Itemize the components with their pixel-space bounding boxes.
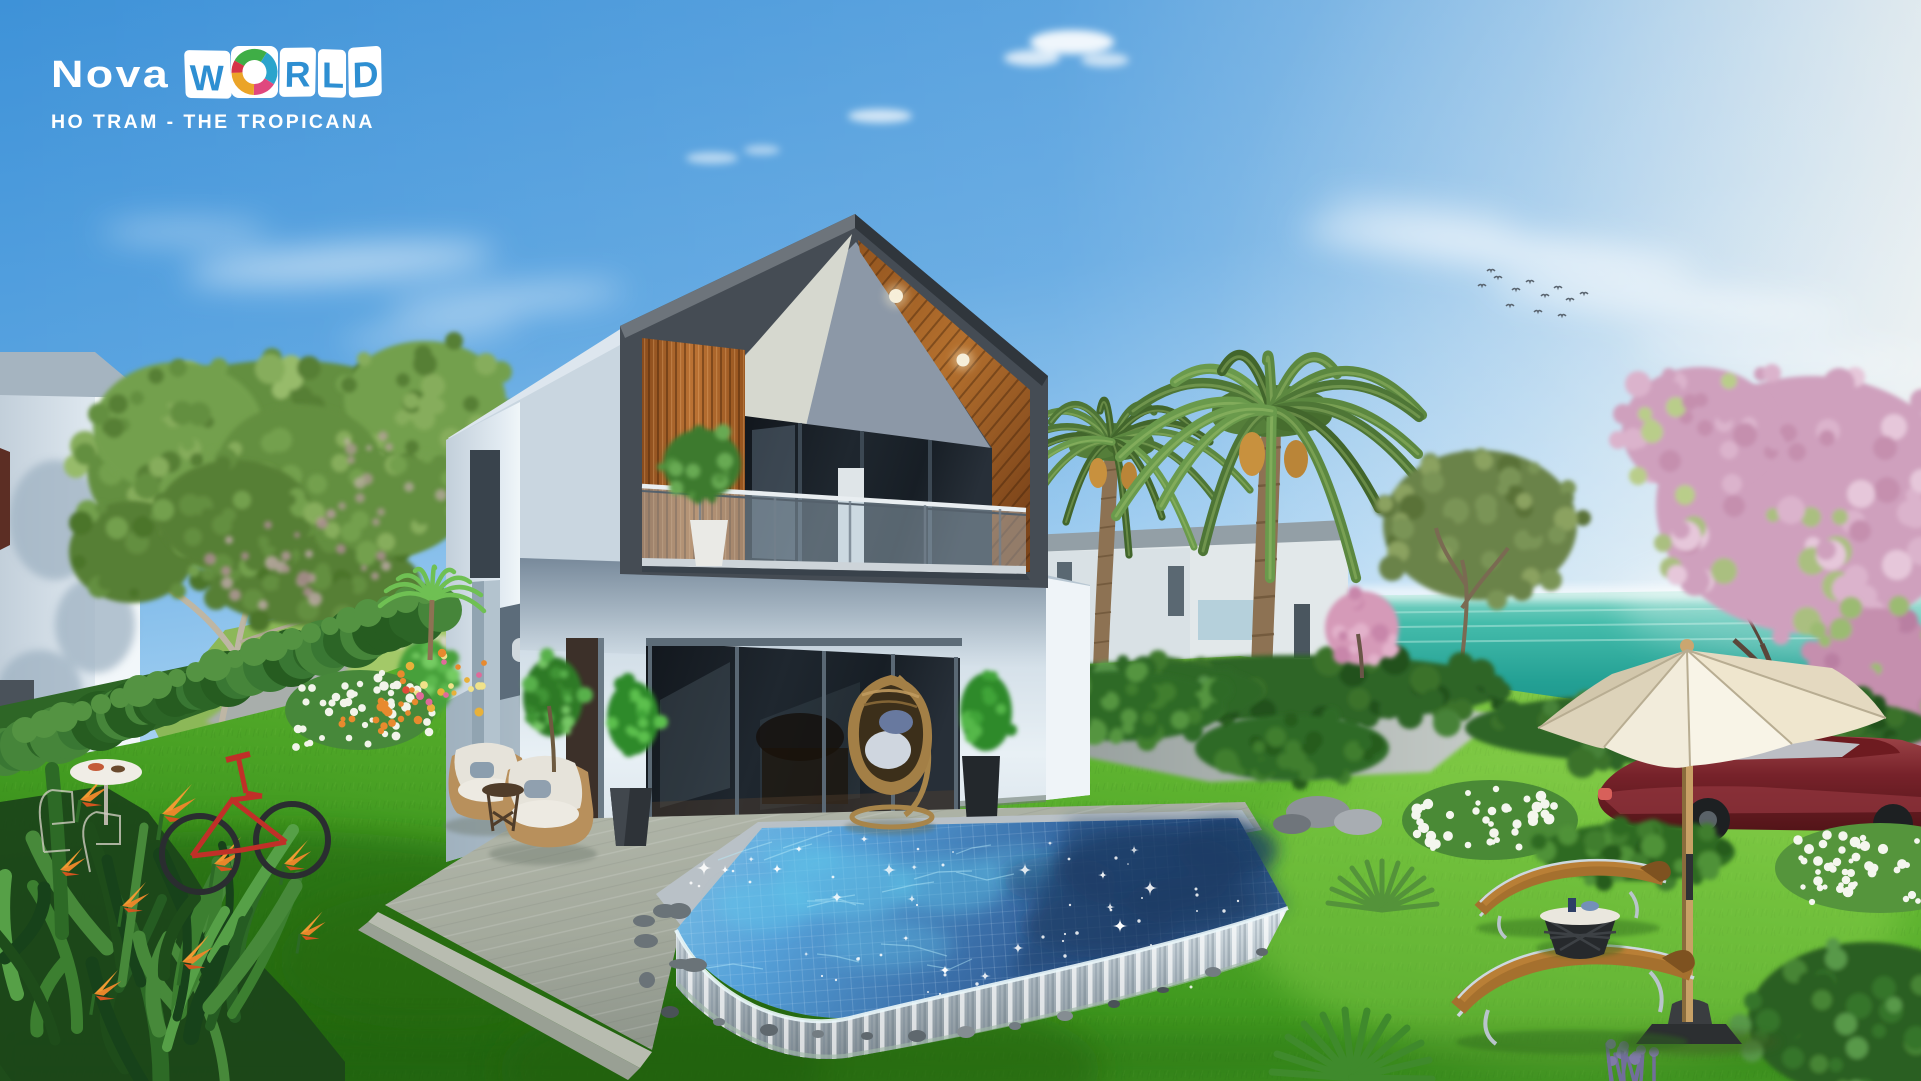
- svg-text:HO TRAM - THE TROPICANA: HO TRAM - THE TROPICANA: [51, 111, 375, 133]
- svg-text:Nova: Nova: [51, 52, 170, 95]
- svg-text:R: R: [284, 53, 311, 94]
- svg-text:L: L: [322, 54, 344, 96]
- svg-text:W: W: [189, 57, 224, 99]
- svg-text:D: D: [352, 53, 379, 96]
